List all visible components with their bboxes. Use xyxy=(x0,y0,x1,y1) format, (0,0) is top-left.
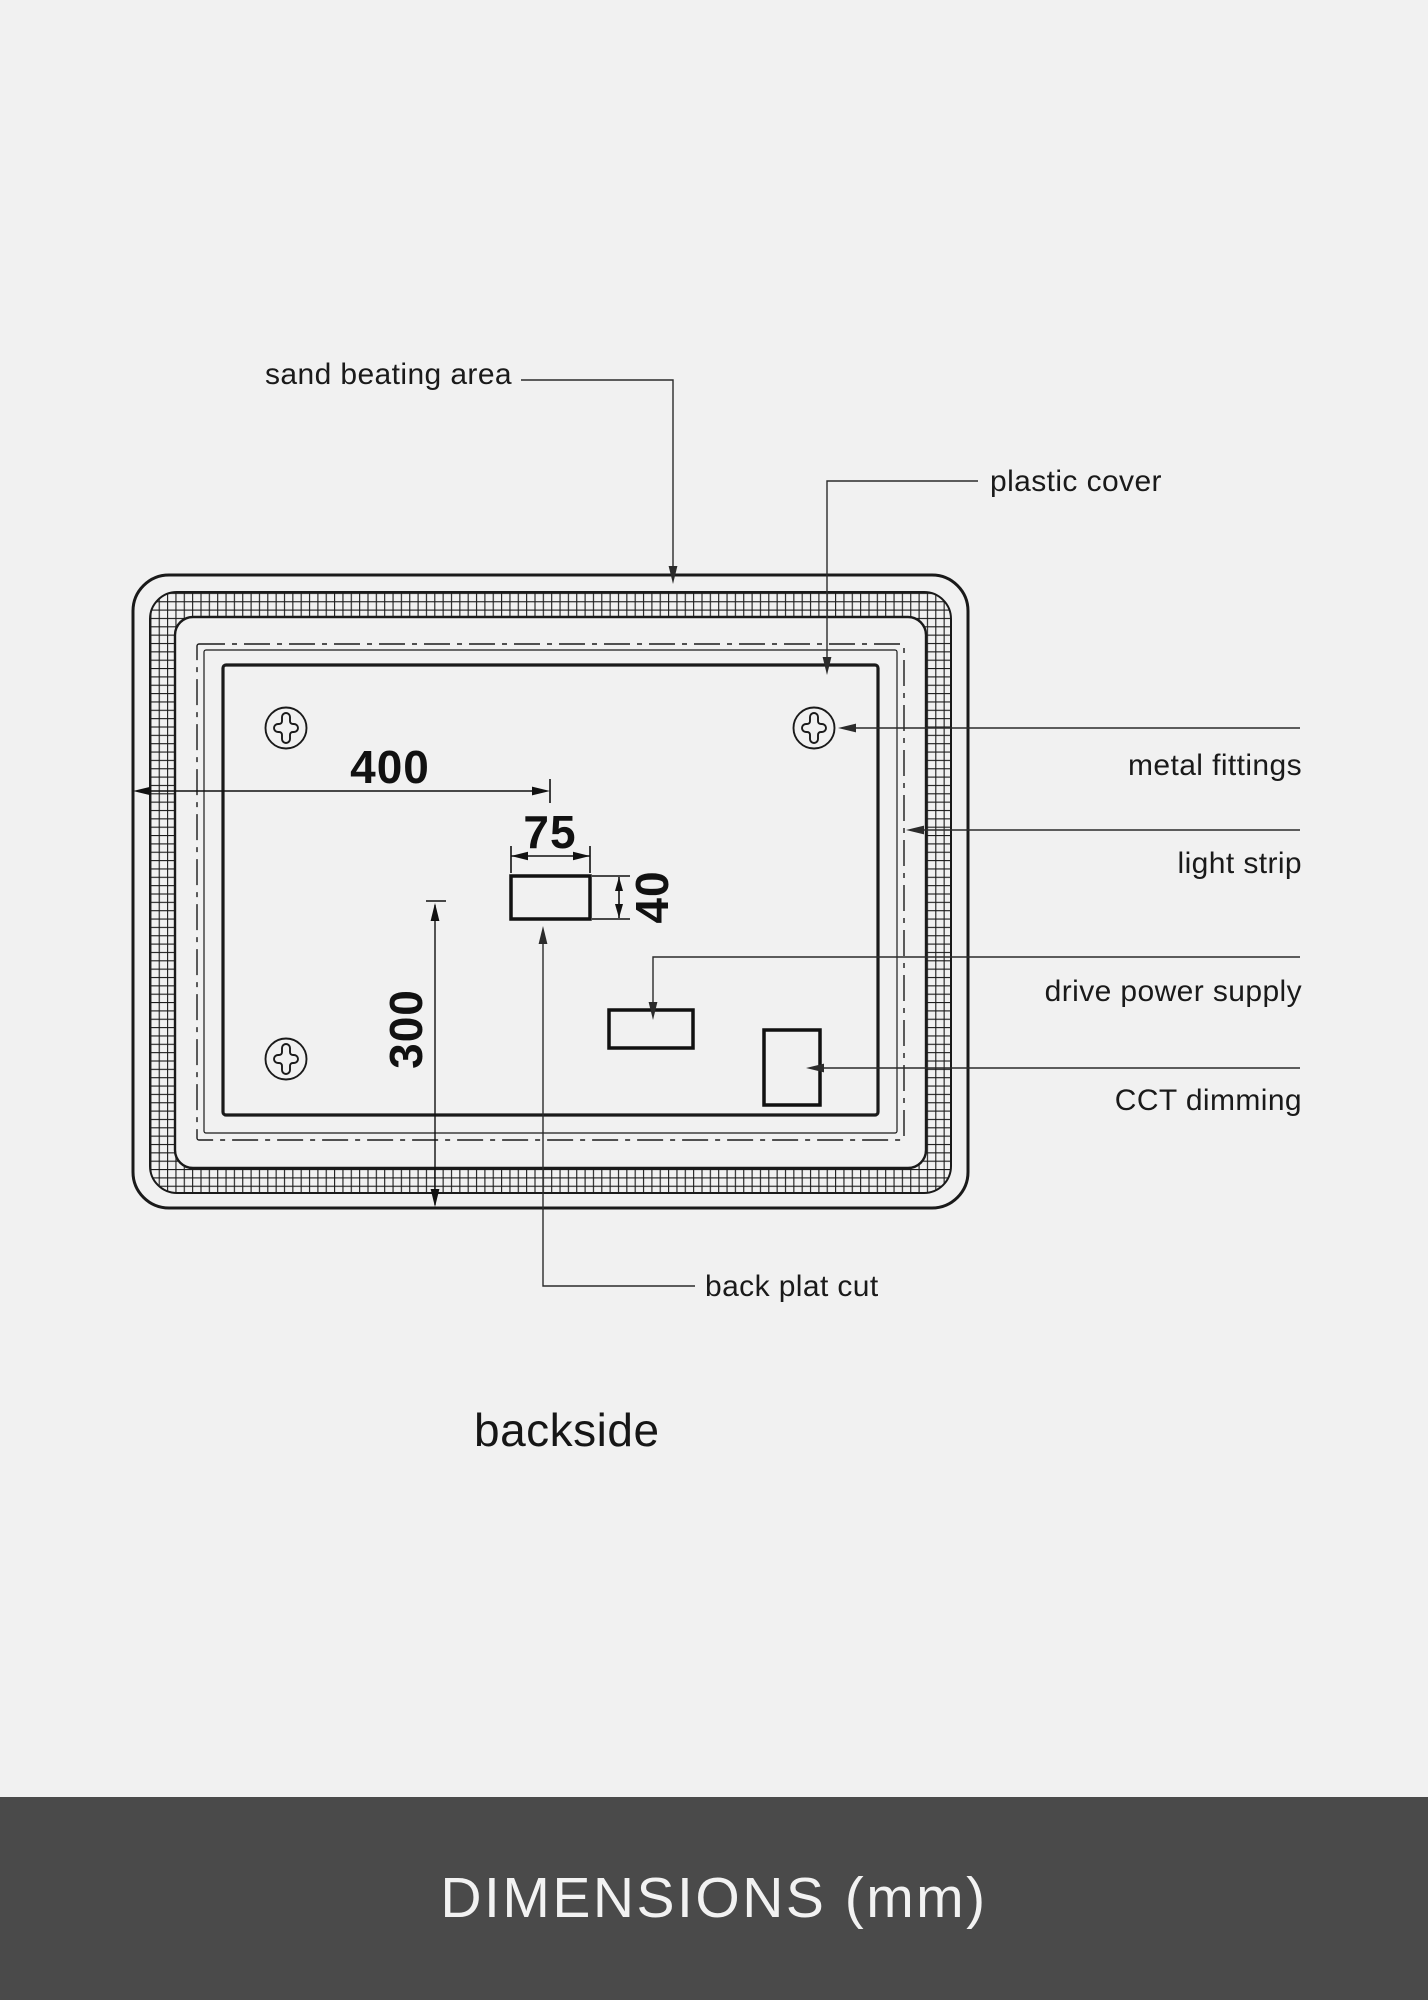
leader-back-plat-cut xyxy=(539,926,695,1286)
label-cct-dimming: CCT dimming xyxy=(1000,1083,1302,1119)
view-caption-backside: backside xyxy=(474,1405,660,1455)
leader-plastic-cover xyxy=(823,481,978,675)
label-drive-power-supply: drive power supply xyxy=(1000,974,1302,1010)
screw-icon xyxy=(266,708,307,749)
back-plat-cut-rect xyxy=(511,876,590,919)
screw-icon xyxy=(266,1039,307,1080)
label-sand-beating-area: sand beating area xyxy=(212,357,512,393)
screw-icon xyxy=(794,708,835,749)
dimensions-drawing-page: sand beating area plastic cover metal fi… xyxy=(0,0,1428,2000)
leader-cct-dimming xyxy=(806,1064,1300,1073)
drive-power-supply-rect xyxy=(609,1010,693,1048)
dimension-value-400: 400 xyxy=(312,744,468,790)
leader-sand-beating-area xyxy=(521,380,677,584)
dimension-40 xyxy=(592,876,630,919)
footer-title: DIMENSIONS (mm) xyxy=(0,1797,1428,2000)
footer-bar: DIMENSIONS (mm) xyxy=(0,1797,1428,2000)
dimension-value-40: 40 xyxy=(629,870,675,923)
leader-light-strip xyxy=(906,826,1300,835)
label-plastic-cover: plastic cover xyxy=(990,464,1162,500)
label-light-strip: light strip xyxy=(1000,846,1302,882)
label-back-plat-cut: back plat cut xyxy=(705,1269,879,1305)
label-metal-fittings: metal fittings xyxy=(1000,748,1302,784)
leader-metal-fittings xyxy=(838,724,1300,733)
dimension-value-300: 300 xyxy=(383,989,429,1069)
dimension-value-75: 75 xyxy=(472,809,628,855)
